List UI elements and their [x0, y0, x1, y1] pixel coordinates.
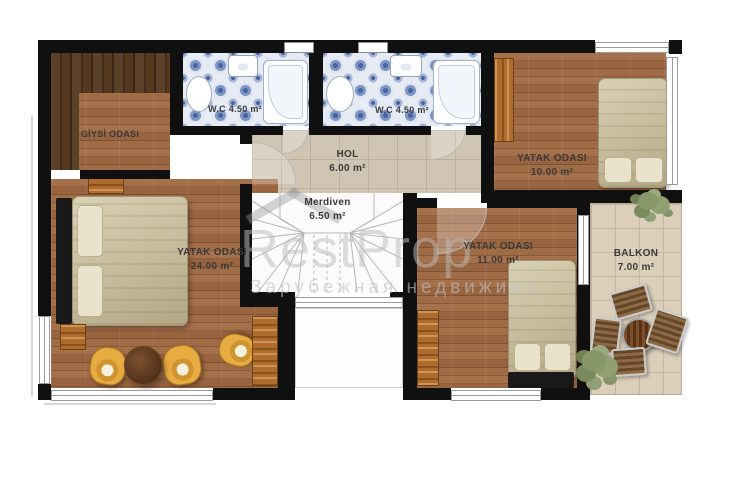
room-label-merdiven: Merdiven 6.50 m²	[252, 196, 403, 223]
window-bottom-bedroom24	[51, 390, 213, 401]
room-area: 6.50 m²	[252, 210, 403, 224]
nightstand-bedroom24-bottom	[60, 324, 86, 350]
top-wall-niche-2	[358, 42, 388, 53]
room-area: 6.00 m²	[255, 162, 440, 176]
bed-pillow	[77, 265, 103, 317]
bed-pillow	[77, 205, 103, 257]
sink-wc1	[228, 55, 258, 77]
wall-wc-bottom-b	[309, 126, 431, 135]
wardrobe-bedroom24	[252, 316, 278, 386]
room-label-balkon: BALKON 7.00 m²	[590, 247, 682, 274]
room-label-yatak-odasi-10: YATAK ODASI 10.00 m²	[496, 152, 608, 179]
window-right-bedroom10	[666, 57, 678, 185]
giysi-wardrobe-dark-wood-left	[51, 53, 79, 170]
floor-plan: RestProp Зарубежная недвижимо GİYSİ ODAS…	[0, 0, 753, 480]
room-area: 24.00 m²	[138, 260, 286, 274]
room-label-wc-1: W.C 4.50 m²	[183, 103, 287, 115]
wall-void-left-column	[278, 298, 295, 400]
sink-wc2	[390, 55, 422, 77]
room-name: Merdiven	[252, 196, 403, 210]
bed-pillow	[635, 157, 663, 183]
room-area: 4.50 m²	[229, 104, 262, 114]
room-area: 4.50 m²	[396, 105, 429, 115]
room-label-yatak-odasi-11: YATAK ODASI 11.00 m²	[422, 240, 574, 267]
room-name: HOL	[255, 148, 440, 162]
top-wall-niche-1	[284, 42, 314, 53]
room-label-hol: HOL 6.00 m²	[255, 148, 440, 175]
wall-left-bottom-stub	[38, 384, 51, 400]
stairwell-void	[295, 308, 403, 388]
window-left-bedroom24	[39, 316, 50, 384]
roof-edge-left	[31, 115, 33, 397]
room-name: YATAK ODASI	[422, 240, 574, 254]
room-area: 10.00 m²	[496, 166, 608, 180]
plant-balcony-top	[638, 192, 658, 210]
bed-headboard-bedroom24	[56, 198, 72, 324]
window-top-bedroom10	[595, 42, 669, 53]
room-name: GİYSİ ODASI	[60, 128, 160, 140]
wall-giysi-right	[170, 52, 183, 132]
bed-foot-bench-bedroom11	[508, 372, 574, 388]
wall-top	[38, 40, 595, 53]
wall-bedroom11-top-a	[417, 198, 437, 208]
wall-wc-divider	[309, 53, 323, 126]
room-name: BALKON	[590, 247, 682, 261]
coffee-table-bedroom24	[124, 346, 162, 384]
wall-wc2-right	[481, 53, 494, 203]
wardrobe-bedroom11	[417, 310, 439, 386]
wall-wc-bottom-c	[466, 126, 481, 135]
window-bottom-bedroom11	[451, 390, 541, 401]
wall-giysi-bottom	[80, 170, 170, 179]
wall-bedroom24-bottom	[213, 388, 295, 400]
wardrobe-bedroom10	[494, 58, 514, 142]
watermark-subtitle: Зарубежная недвижимо	[250, 277, 542, 299]
wall-bedroom24-east-upper	[240, 128, 252, 144]
room-name: W.C	[208, 104, 226, 114]
balcony-chair-4	[611, 347, 647, 377]
room-area: 7.00 m²	[590, 261, 682, 275]
room-label-giysi-odasi: GİYSİ ODASI	[60, 128, 160, 140]
sill-edge-bottom	[44, 403, 216, 405]
wall-bedroom11-bottom-a	[403, 388, 451, 400]
plant-balcony-bottom	[582, 350, 606, 372]
wall-bedroom11-bottom-b	[541, 388, 590, 400]
room-area: 11.00 m²	[422, 254, 574, 268]
room-label-wc-2: W.C 4.50 m²	[323, 104, 481, 116]
bed-bedroom10	[598, 78, 668, 188]
wall-left	[38, 40, 51, 316]
wall-wc-bottom-a	[170, 126, 283, 135]
room-label-yatak-odasi-24: YATAK ODASI 24.00 m²	[138, 246, 286, 273]
room-name: YATAK ODASI	[496, 152, 608, 166]
wall-top-right-stub	[669, 40, 682, 54]
room-name: W.C	[375, 105, 393, 115]
bed-pillow	[544, 343, 571, 371]
bed-pillow	[604, 157, 632, 183]
balcony-sliding-door	[578, 215, 589, 285]
room-name: YATAK ODASI	[138, 246, 286, 260]
bed-pillow	[514, 343, 541, 371]
